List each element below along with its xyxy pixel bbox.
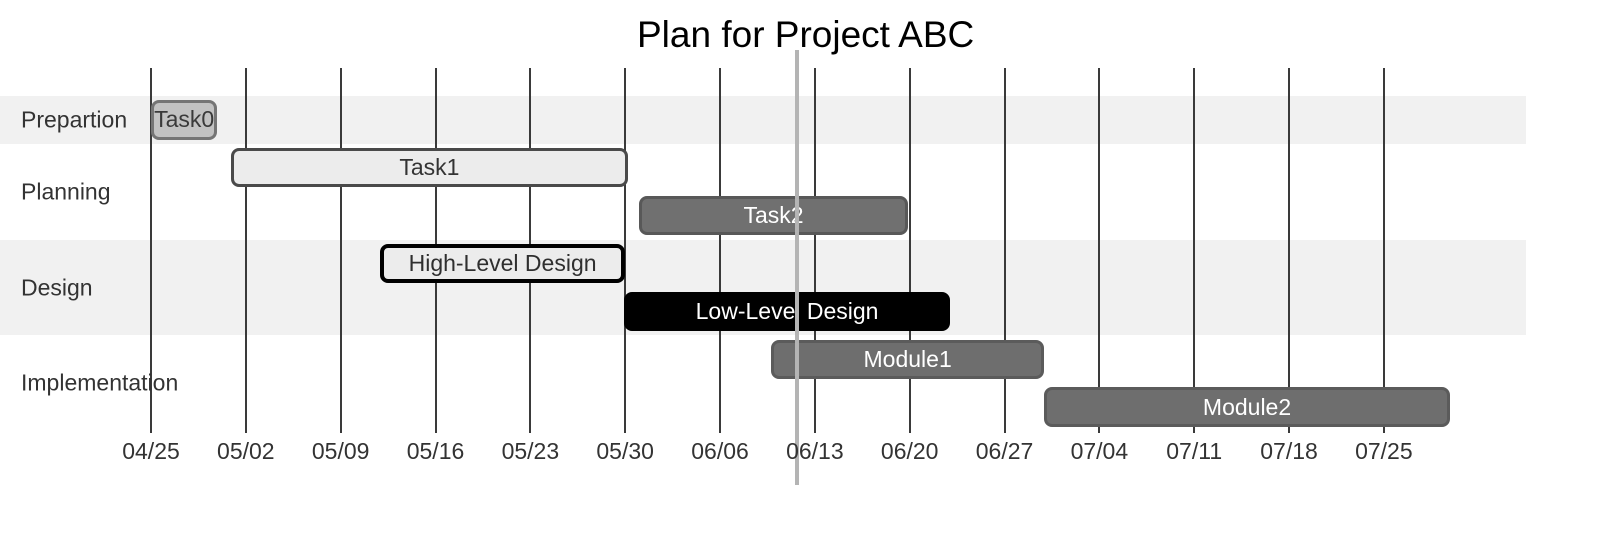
- gridline-07-18: [1288, 68, 1290, 433]
- task-bar-task2: Task2: [639, 196, 909, 236]
- gridline-07-25: [1383, 68, 1385, 433]
- today-marker-line: [795, 50, 799, 485]
- axis-tick-label-07-18: 07/18: [1260, 438, 1318, 465]
- task-bar-label: Task0: [154, 106, 214, 133]
- task-bar-module2: Module2: [1044, 387, 1450, 427]
- gridline-07-11: [1193, 68, 1195, 433]
- axis-tick-label-05-16: 05/16: [407, 438, 465, 465]
- axis-tick-label-05-30: 05/30: [596, 438, 654, 465]
- axis-tick-label-06-20: 06/20: [881, 438, 939, 465]
- gridline-07-04: [1098, 68, 1100, 433]
- task-bar-task0: Task0: [151, 100, 217, 140]
- section-label-prepartion: Prepartion: [21, 106, 127, 133]
- gridline-05-09: [340, 68, 342, 433]
- task-bar-low-level-design: Low-Level Design: [624, 292, 951, 332]
- axis-tick-label-06-06: 06/06: [691, 438, 749, 465]
- section-band-prepartion: [0, 96, 1526, 144]
- section-label-implementation: Implementation: [21, 370, 178, 397]
- axis-tick-label-05-23: 05/23: [502, 438, 560, 465]
- gridline-05-02: [245, 68, 247, 433]
- task-bar-label: High-Level Design: [409, 250, 597, 277]
- task-bar-task1: Task1: [231, 148, 628, 188]
- axis-tick-label-07-25: 07/25: [1355, 438, 1413, 465]
- chart-title: Plan for Project ABC: [637, 14, 974, 56]
- task-bar-module1: Module1: [771, 340, 1043, 380]
- task-bar-high-level-design: High-Level Design: [380, 244, 625, 284]
- task-bar-label: Task1: [399, 154, 459, 181]
- task-bar-label: Module2: [1203, 394, 1291, 421]
- axis-tick-label-07-11: 07/11: [1166, 438, 1222, 465]
- task-bar-label: Low-Level Design: [696, 298, 879, 325]
- axis-tick-label-05-02: 05/02: [217, 438, 275, 465]
- gridline-06-06: [719, 68, 721, 433]
- section-label-design: Design: [21, 274, 93, 301]
- axis-tick-label-04-25: 04/25: [122, 438, 180, 465]
- task-bar-label: Module1: [864, 346, 952, 373]
- gantt-chart: Plan for Project ABC Task0Task1Task2High…: [0, 0, 1600, 536]
- section-label-planning: Planning: [21, 178, 111, 205]
- axis-tick-label-07-04: 07/04: [1071, 438, 1129, 465]
- axis-tick-label-05-09: 05/09: [312, 438, 370, 465]
- axis-tick-label-06-27: 06/27: [976, 438, 1034, 465]
- axis-tick-label-06-13: 06/13: [786, 438, 844, 465]
